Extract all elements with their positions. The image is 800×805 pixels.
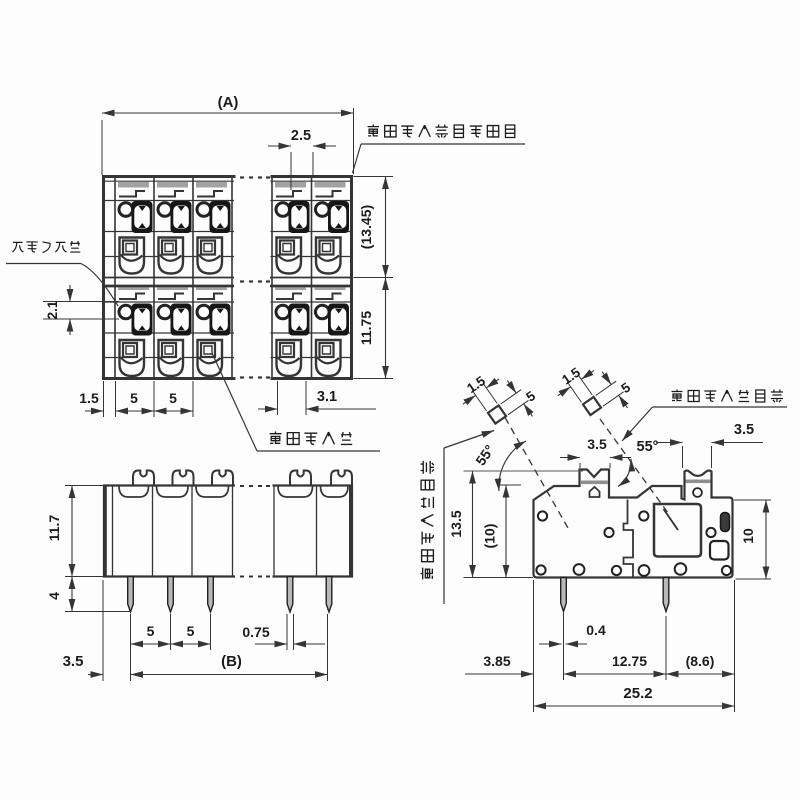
svg-text:(A): (A) bbox=[218, 94, 239, 111]
svg-text:5: 5 bbox=[187, 623, 195, 639]
svg-text:3.5: 3.5 bbox=[734, 422, 754, 438]
svg-text:1.5: 1.5 bbox=[79, 390, 99, 406]
svg-text:25.2: 25.2 bbox=[623, 685, 652, 702]
svg-text:3.85: 3.85 bbox=[483, 653, 510, 669]
svg-text:(13.45): (13.45) bbox=[358, 205, 374, 249]
svg-text:0.4: 0.4 bbox=[586, 622, 606, 638]
svg-text:11.7: 11.7 bbox=[46, 515, 62, 542]
svg-text:3.1: 3.1 bbox=[317, 389, 337, 405]
svg-text:(8.6): (8.6) bbox=[686, 653, 715, 669]
svg-text:5: 5 bbox=[130, 390, 138, 406]
svg-text:(10): (10) bbox=[482, 524, 498, 549]
svg-text:5: 5 bbox=[147, 623, 155, 639]
svg-text:11.75: 11.75 bbox=[358, 311, 374, 345]
svg-text:3.5: 3.5 bbox=[63, 653, 84, 670]
svg-text:13.5: 13.5 bbox=[448, 510, 464, 537]
svg-text:3.5: 3.5 bbox=[587, 436, 607, 452]
svg-text:2.1: 2.1 bbox=[45, 300, 60, 319]
svg-text:0.75: 0.75 bbox=[242, 624, 269, 640]
svg-text:4: 4 bbox=[46, 592, 62, 600]
svg-text:10: 10 bbox=[740, 528, 756, 544]
svg-text:2.5: 2.5 bbox=[291, 128, 311, 144]
svg-text:12.75: 12.75 bbox=[612, 653, 647, 669]
svg-text:(B): (B) bbox=[221, 653, 242, 670]
svg-text:5: 5 bbox=[169, 390, 177, 406]
svg-text:55°: 55° bbox=[637, 439, 659, 455]
